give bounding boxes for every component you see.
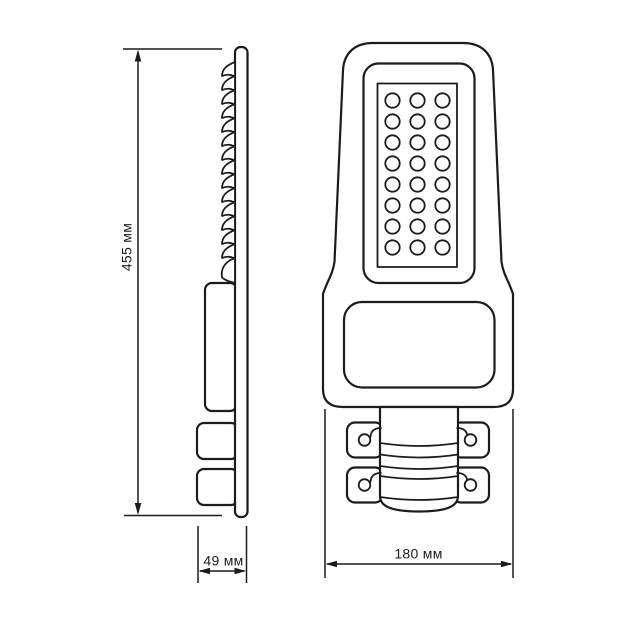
led-lens <box>385 156 399 170</box>
led-lens <box>435 177 449 191</box>
arrow-down-icon <box>135 503 142 515</box>
heatsink-fin <box>222 258 235 283</box>
lamp-body-profile <box>235 47 248 517</box>
led-lens <box>435 114 449 128</box>
heatsink-fin <box>222 216 235 231</box>
led-lens <box>385 135 399 149</box>
led-lens <box>410 156 424 170</box>
heatsink-fin <box>222 160 235 175</box>
heatsink-fins <box>222 62 235 283</box>
pole-clamp-profile-lower <box>197 469 238 505</box>
led-lens <box>385 198 399 212</box>
heatsink-fin <box>222 244 235 259</box>
arrow-right-icon <box>501 561 513 567</box>
led-lens <box>410 93 424 107</box>
drawing-svg: 455 мм 49 мм 180 мм <box>0 0 630 630</box>
heatsink-fin <box>222 188 235 203</box>
heatsink-fin <box>222 104 235 119</box>
led-lens <box>385 219 399 233</box>
led-lens <box>385 240 399 254</box>
led-lens <box>385 177 399 191</box>
led-lens <box>435 198 449 212</box>
heatsink-fin <box>222 146 235 161</box>
led-lens <box>435 219 449 233</box>
led-lens <box>435 93 449 107</box>
front-view <box>323 43 513 512</box>
heatsink-fin <box>222 90 235 105</box>
driver-housing-profile <box>205 283 237 411</box>
arrow-left-icon <box>326 561 338 567</box>
bolt-hole <box>359 479 371 491</box>
heatsink-fin <box>222 118 235 133</box>
driver-compartment-panel <box>344 302 495 388</box>
dimension-label-depth: 49 мм <box>203 553 243 569</box>
pole-socket <box>380 407 458 512</box>
bolt-hole <box>465 434 477 446</box>
led-lens <box>410 114 424 128</box>
led-lens <box>435 240 449 254</box>
arrow-up-icon <box>135 50 142 62</box>
led-lens <box>435 156 449 170</box>
led-lens <box>410 240 424 254</box>
heatsink-fin <box>222 230 235 245</box>
bolt-hole <box>465 479 477 491</box>
arrow-left-icon <box>199 568 211 574</box>
heatsink-fin <box>222 202 235 217</box>
arrow-right-icon <box>235 568 247 574</box>
dimension-label-width: 180 мм <box>394 546 442 562</box>
mounting-bracket <box>347 407 489 512</box>
side-view <box>197 47 248 517</box>
pole-clamp-profile-upper <box>197 423 238 459</box>
led-lens <box>385 93 399 107</box>
led-lens <box>385 114 399 128</box>
led-lens <box>435 135 449 149</box>
heatsink-fin <box>222 174 235 189</box>
heatsink-fin <box>222 62 235 77</box>
dimension-label-height: 455 мм <box>119 223 135 271</box>
led-lens <box>410 177 424 191</box>
bolt-hole <box>359 434 371 446</box>
dimension-depth: 49 мм <box>198 526 247 583</box>
dimension-drawing: 455 мм 49 мм 180 мм <box>0 0 630 630</box>
heatsink-fin <box>222 76 235 91</box>
led-lens <box>410 198 424 212</box>
led-lens <box>410 135 424 149</box>
heatsink-fin <box>222 132 235 147</box>
led-lens <box>410 219 424 233</box>
